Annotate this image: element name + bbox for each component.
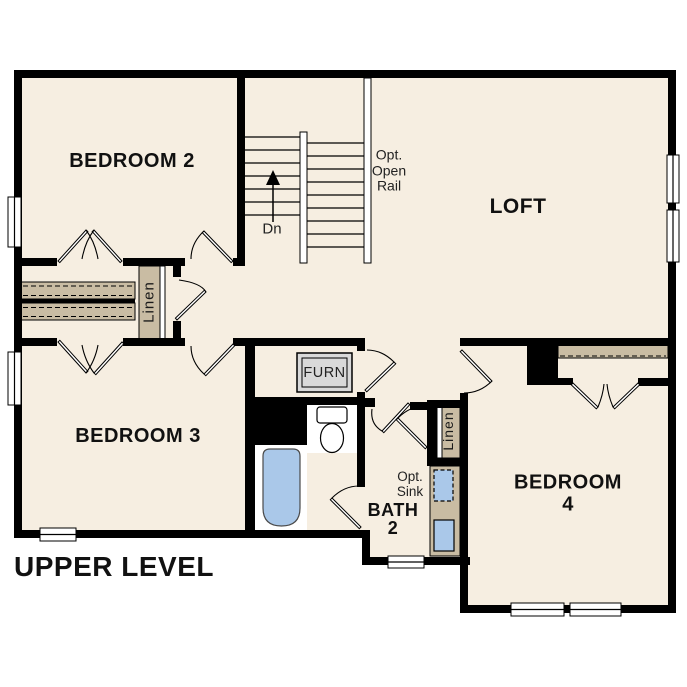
stair-center-rail bbox=[300, 132, 307, 263]
window bbox=[511, 603, 564, 616]
window bbox=[40, 528, 76, 541]
room-label-bath2: BATH 2 bbox=[368, 501, 419, 537]
window bbox=[667, 210, 679, 262]
sink bbox=[434, 520, 454, 551]
window bbox=[8, 197, 21, 247]
floor-plan: BEDROOM 2 LOFT BEDROOM 3 BEDROOM 4 BATH … bbox=[0, 0, 687, 687]
room-label-bedroom4: BEDROOM 4 bbox=[509, 472, 628, 517]
page-title: UPPER LEVEL bbox=[14, 551, 214, 582]
window bbox=[667, 155, 679, 203]
room-label-loft: LOFT bbox=[490, 195, 547, 219]
annotation-linen-right: Linen bbox=[441, 411, 457, 450]
annotation-stairs-down: Dn bbox=[262, 222, 281, 239]
annotation-furnace: FURN bbox=[303, 364, 345, 380]
floor-plan-drawing bbox=[0, 0, 687, 687]
annotation-opt-sink: Opt. Sink bbox=[397, 469, 423, 499]
optional-sink bbox=[434, 470, 453, 501]
plumbing-chase bbox=[255, 405, 307, 445]
window bbox=[570, 603, 621, 616]
window bbox=[8, 352, 21, 405]
bathtub bbox=[263, 449, 300, 526]
hall-shelf-lower bbox=[21, 303, 135, 320]
hall-shelf-upper bbox=[21, 282, 135, 299]
annotation-opt-open-rail: Opt. Open Rail bbox=[372, 147, 406, 194]
window bbox=[388, 556, 424, 568]
annotation-linen-left: Linen bbox=[142, 281, 159, 323]
room-label-bedroom2: BEDROOM 2 bbox=[69, 150, 195, 172]
stair-open-rail bbox=[364, 78, 371, 263]
room-label-bedroom3: BEDROOM 3 bbox=[75, 425, 201, 447]
